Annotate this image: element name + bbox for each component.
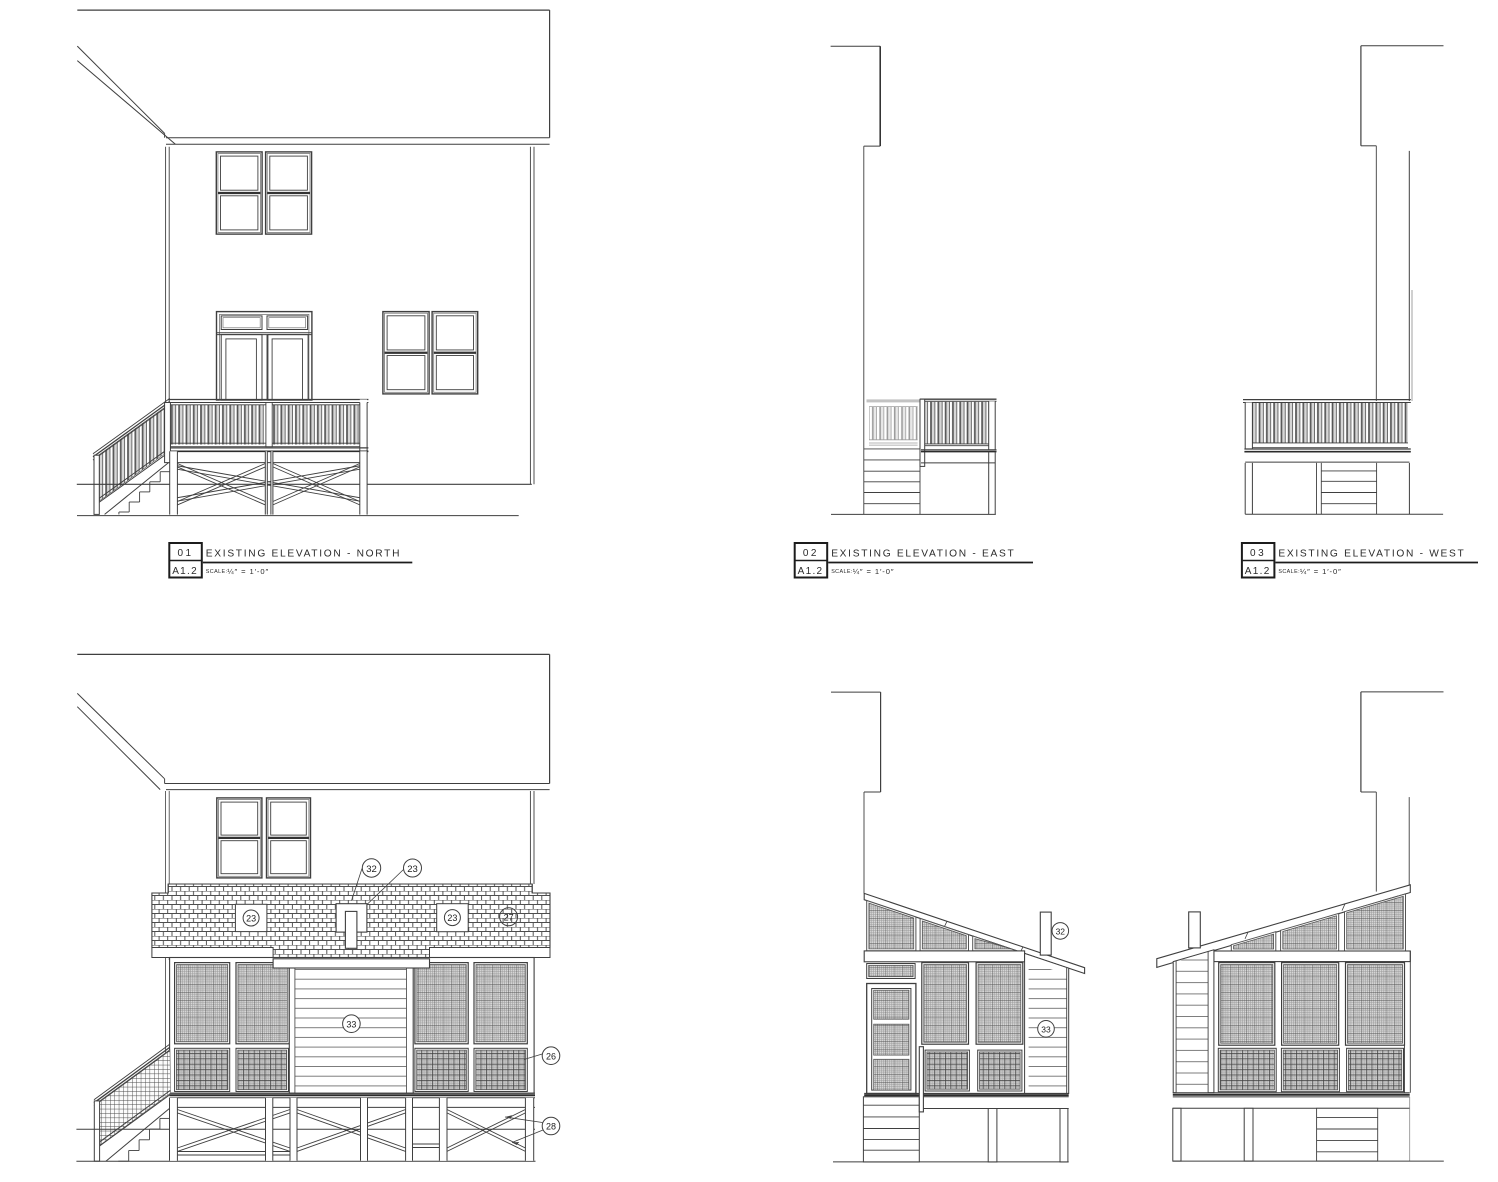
- svg-text:A1.2: A1.2: [172, 566, 198, 577]
- svg-text:33: 33: [1041, 1024, 1051, 1034]
- svg-text:01: 01: [177, 548, 193, 559]
- svg-text:03: 03: [1250, 548, 1266, 559]
- svg-text:A1.2: A1.2: [798, 566, 824, 577]
- svg-text:¼″ = 1′-0″: ¼″ = 1′-0″: [853, 567, 895, 576]
- svg-text:33: 33: [346, 1019, 356, 1029]
- svg-text:EXISTING ELEVATION - NORTH: EXISTING ELEVATION - NORTH: [206, 549, 401, 560]
- svg-text:¼″ = 1′-0″: ¼″ = 1′-0″: [227, 567, 269, 576]
- svg-text:A1.2: A1.2: [1245, 566, 1271, 577]
- svg-text:23: 23: [246, 914, 256, 924]
- svg-text:28: 28: [546, 1122, 556, 1132]
- svg-text:EXISTING ELEVATION - EAST: EXISTING ELEVATION - EAST: [831, 549, 1015, 560]
- svg-text:¼″ = 1′-0″: ¼″ = 1′-0″: [1300, 567, 1342, 576]
- svg-text:EXISTING ELEVATION - WEST: EXISTING ELEVATION - WEST: [1278, 549, 1465, 560]
- svg-text:27: 27: [504, 913, 514, 923]
- svg-text:SCALE:: SCALE:: [206, 569, 228, 575]
- svg-text:SCALE:: SCALE:: [831, 569, 853, 575]
- svg-text:23: 23: [407, 864, 418, 875]
- svg-text:32: 32: [366, 864, 377, 875]
- svg-text:23: 23: [447, 913, 457, 923]
- svg-text:02: 02: [803, 548, 819, 559]
- svg-text:32: 32: [1056, 927, 1066, 937]
- svg-text:SCALE:: SCALE:: [1278, 569, 1300, 575]
- svg-text:26: 26: [546, 1051, 556, 1061]
